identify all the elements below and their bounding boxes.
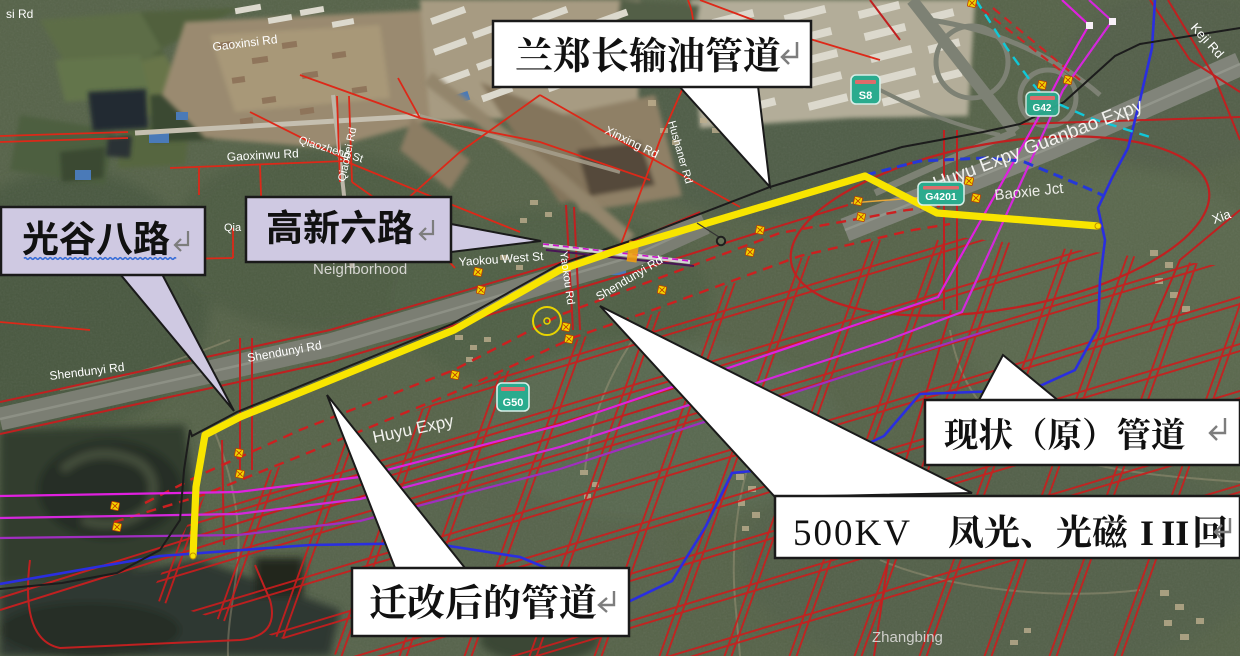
svg-text:Neighborhood: Neighborhood [313, 261, 407, 278]
svg-text:G42: G42 [1033, 103, 1052, 114]
svg-text:500KV: 500KV [793, 513, 912, 554]
svg-text:Zhangbing: Zhangbing [872, 629, 943, 646]
svg-text:si Rd: si Rd [6, 7, 33, 21]
svg-text:G50: G50 [503, 397, 524, 409]
svg-text:G4201: G4201 [925, 191, 957, 203]
svg-text:Qia: Qia [224, 222, 242, 234]
svg-text:I II: I II [1140, 513, 1189, 553]
svg-text:S8: S8 [859, 90, 872, 102]
